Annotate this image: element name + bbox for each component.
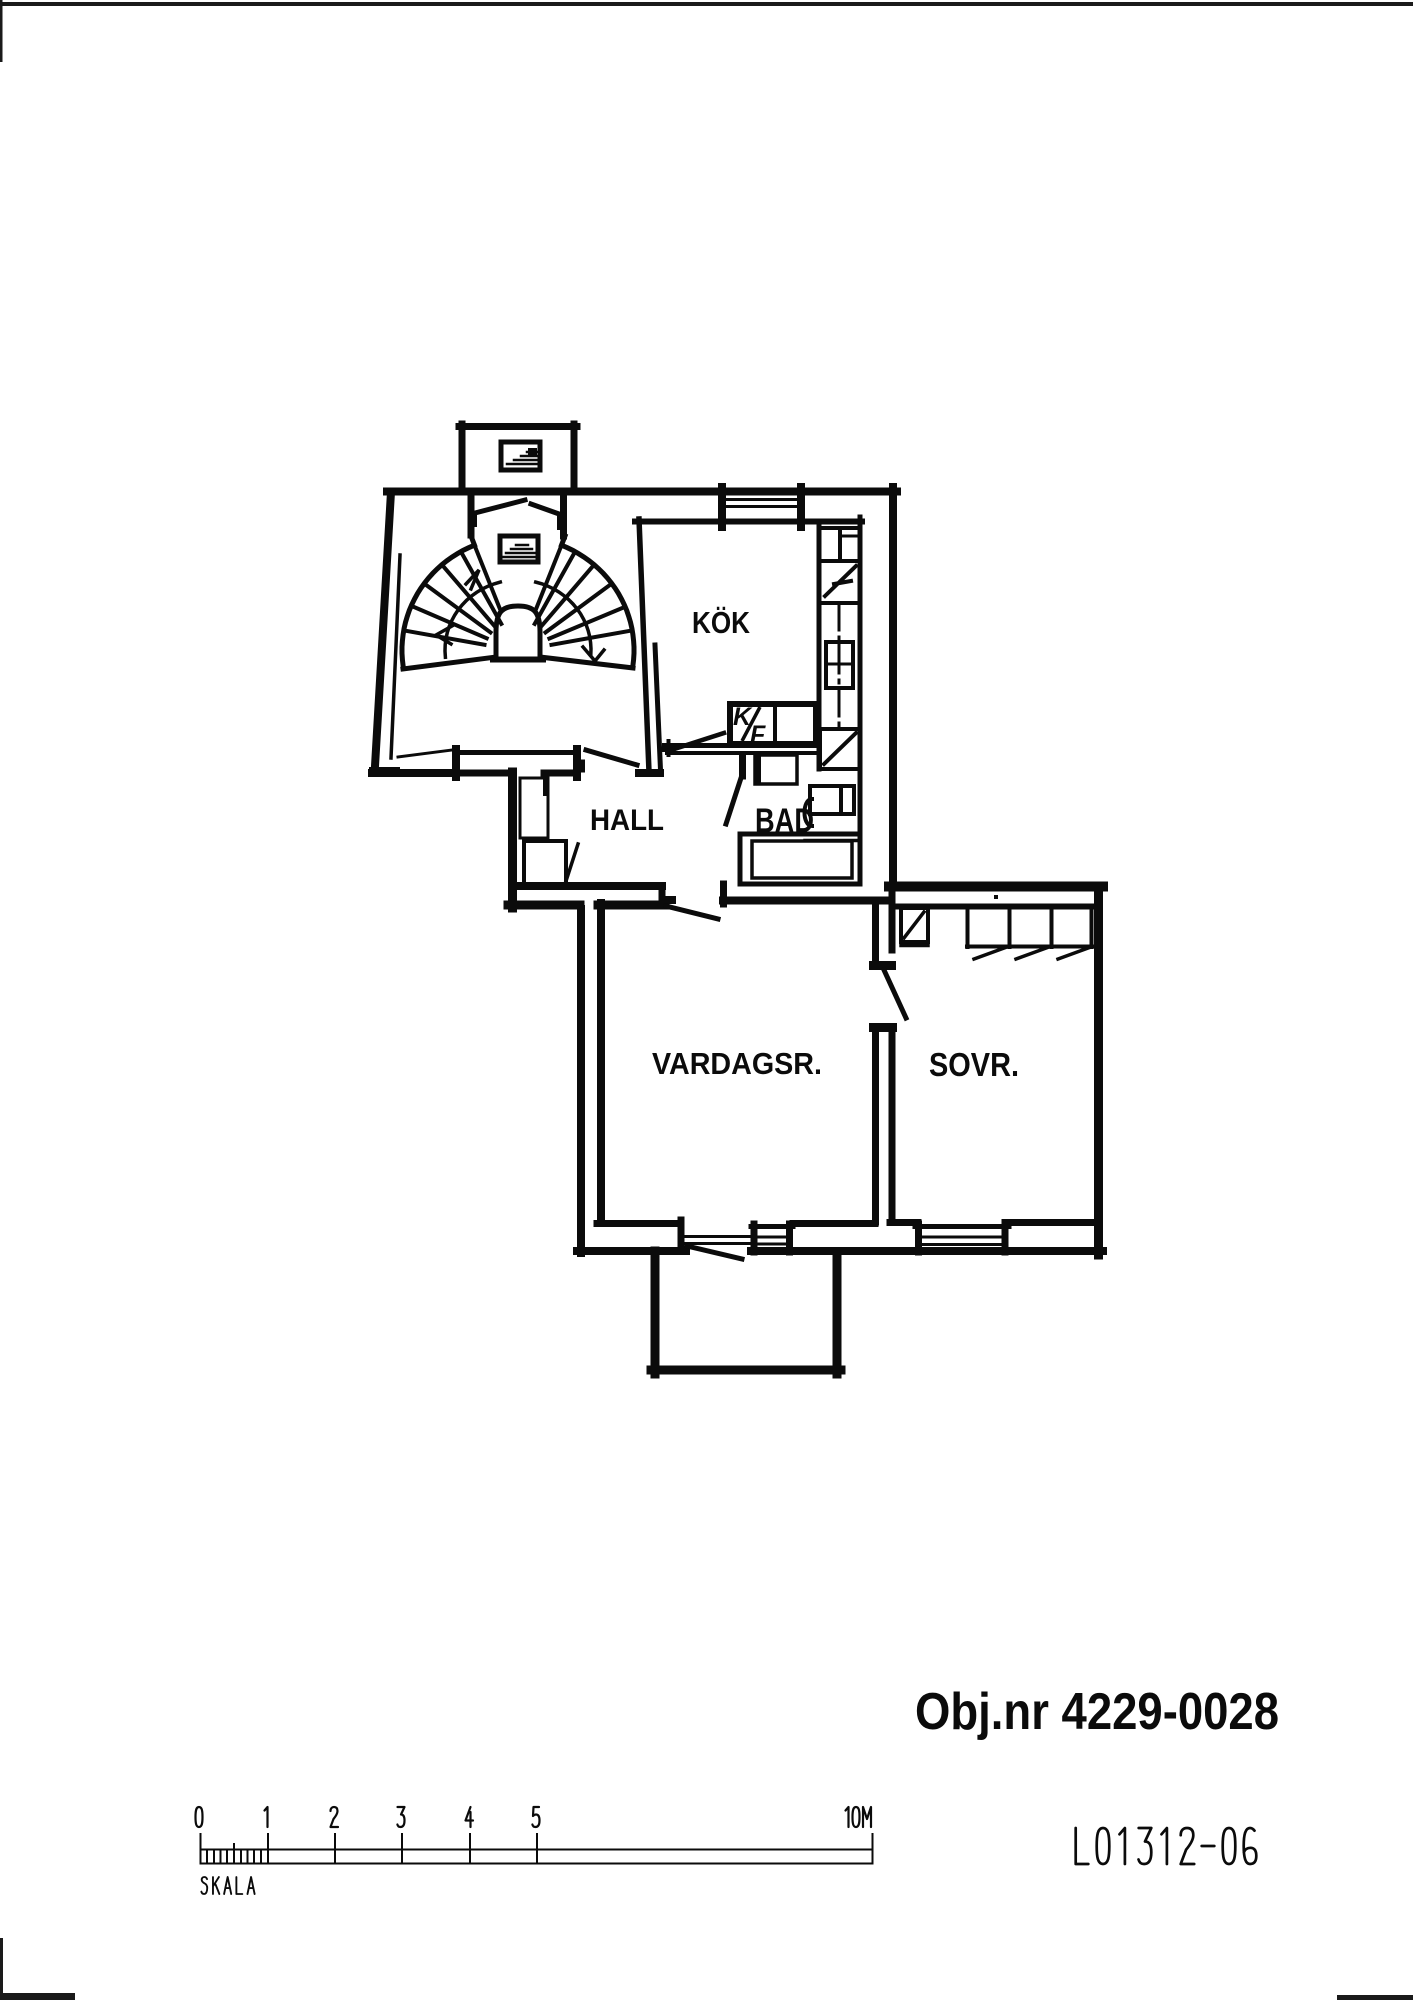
svg-text:F: F — [750, 721, 766, 749]
svg-text:HALL: HALL — [590, 804, 664, 837]
svg-text:VARDAGSR.: VARDAGSR. — [652, 1046, 822, 1081]
svg-text:SOVR.: SOVR. — [929, 1046, 1019, 1083]
svg-text:Obj.nr 4229-0028: Obj.nr 4229-0028 — [915, 1683, 1279, 1741]
svg-text:BAD: BAD — [755, 802, 814, 840]
svg-text:KÖK: KÖK — [692, 605, 751, 640]
